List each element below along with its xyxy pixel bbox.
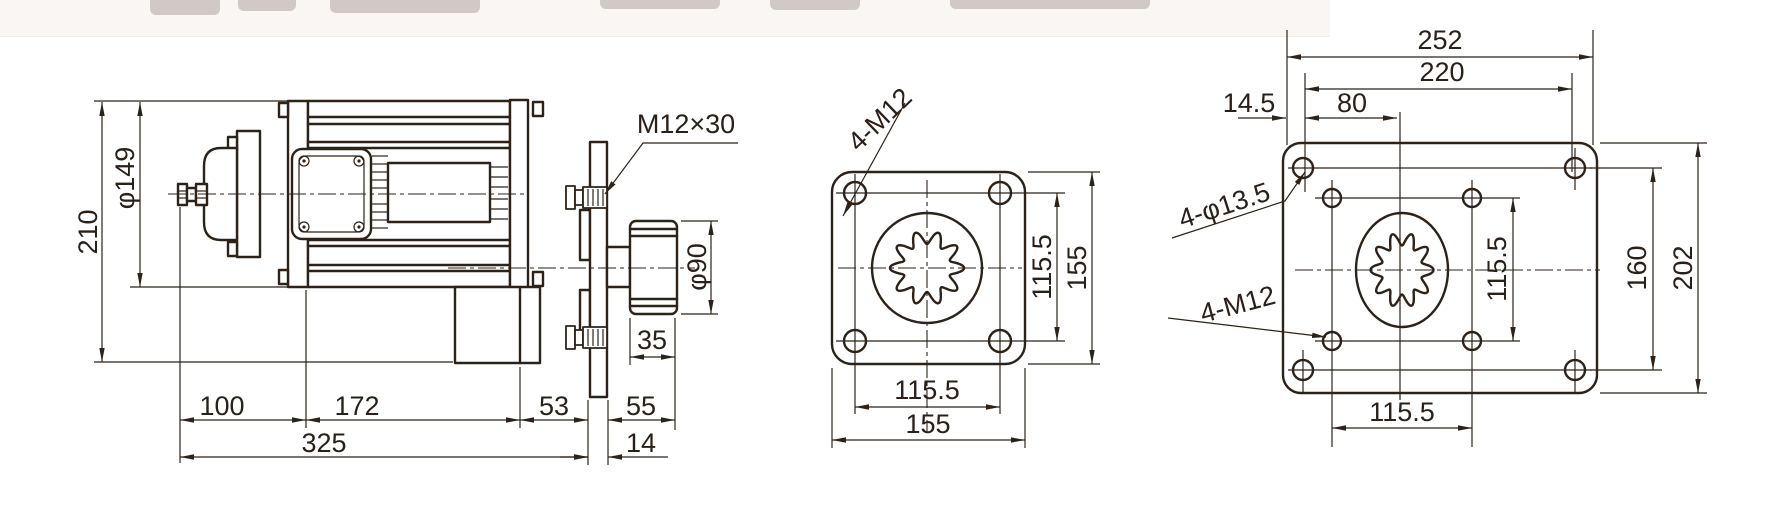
- dim-output-length: 55: [626, 391, 656, 421]
- dim-inner-spacing-h: 115.5: [1369, 397, 1435, 427]
- dim-gear-length: 53: [539, 391, 569, 421]
- dim-plate-width: 252: [1417, 25, 1462, 55]
- dim-flange-hole-spacing-h: 115.5: [894, 375, 960, 405]
- label-outer-hole-spec: 4-φ13.5: [1175, 177, 1274, 235]
- gearbox-housing: [455, 287, 540, 363]
- dim-edge-to-hole: 14.5: [1223, 88, 1276, 118]
- flange-view: 4-M12 115.5 155 115.5 155: [832, 82, 1100, 448]
- dim-inner-spacing-v: 115.5: [1482, 236, 1512, 302]
- nameplate: [388, 163, 490, 222]
- dim-front-length: 100: [199, 391, 244, 421]
- dim-hole-to-center: 80: [1337, 88, 1367, 118]
- dim-flange-thickness: 14: [626, 428, 656, 458]
- technical-drawing-page: 210 φ149 M12×30 φ90 35 100 172 53 55 325…: [0, 0, 1791, 516]
- label-inner-hole-spec: 4-M12: [1197, 280, 1279, 329]
- dim-flange-width: 155: [905, 409, 950, 439]
- label-bolt-spec: M12×30: [637, 109, 735, 139]
- dim-coupling-width: 35: [637, 325, 667, 355]
- bolt-leader-line: [605, 143, 738, 194]
- dim-body-diameter: φ149: [110, 147, 140, 210]
- gearmotor-dimension-drawing: 210 φ149 M12×30 φ90 35 100 172 53 55 325…: [0, 0, 1791, 516]
- output-flange: [580, 142, 677, 397]
- flange-bolt-top: [566, 186, 607, 209]
- dim-outer-spacing-v: 160: [1622, 245, 1652, 290]
- motor-outline: [178, 100, 677, 397]
- dim-total-length: 325: [301, 428, 346, 458]
- dim-overall-height: 210: [73, 209, 103, 254]
- dim-plate-height: 202: [1668, 245, 1698, 290]
- plate-view: 252 220 14.5 80 4-φ13.5 4-M12 115.5 160 …: [1168, 25, 1707, 447]
- dim-outer-spacing-h: 220: [1419, 57, 1464, 87]
- dim-flange-height: 155: [1062, 245, 1092, 290]
- dim-coupling-diameter: φ90: [682, 243, 712, 291]
- label-flange-hole-spec: 4-M12: [842, 82, 918, 157]
- flange-bolt-bottom: [566, 326, 607, 349]
- dim-flange-hole-spacing-v: 115.5: [1027, 234, 1057, 300]
- dim-body-length: 172: [334, 391, 379, 421]
- side-view: 210 φ149 M12×30 φ90 35 100 172 53 55 325…: [73, 100, 738, 465]
